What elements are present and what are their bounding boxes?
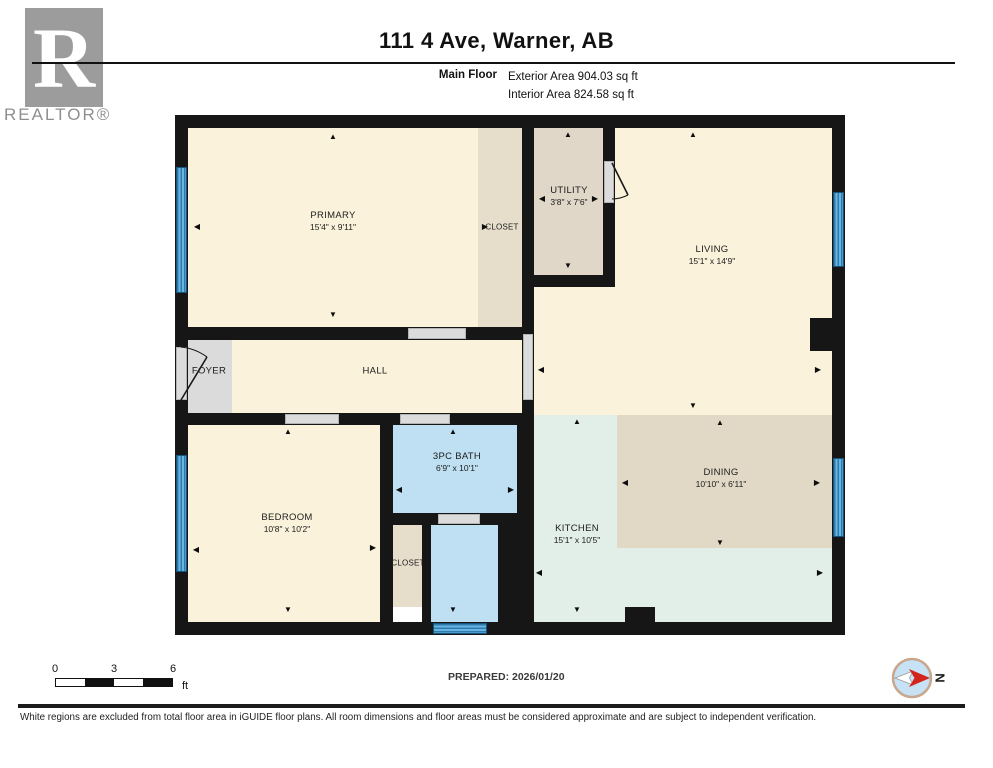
compass-icon: N bbox=[888, 655, 948, 703]
measure-arrow-up: ▲ bbox=[573, 418, 581, 426]
measure-arrow-left: ◀ bbox=[193, 546, 199, 554]
scale-unit: ft bbox=[182, 680, 188, 692]
room-label-hall: HALL bbox=[363, 366, 388, 377]
wall-chimney bbox=[810, 318, 833, 351]
measure-arrow-left: ◀ bbox=[622, 479, 628, 487]
measure-arrow-right: ▶ bbox=[814, 479, 820, 487]
measure-arrow-down: ▼ bbox=[716, 539, 724, 547]
room-label-utility: UTILITY3'8" x 7'6" bbox=[550, 185, 587, 207]
room-label-living: LIVING15'1" x 14'9" bbox=[689, 244, 736, 266]
wall-hall-bottom bbox=[175, 413, 534, 425]
room-vestibule bbox=[431, 525, 498, 622]
window-dining bbox=[833, 458, 844, 537]
measure-arrow-up: ▲ bbox=[716, 419, 724, 427]
disclaimer-text: White regions are excluded from total fl… bbox=[20, 712, 973, 723]
measure-arrow-down: ▼ bbox=[573, 606, 581, 614]
scale-labels: 0 3 6 bbox=[55, 663, 173, 675]
floorplan-page: R REALTOR® 111 4 Ave, Warner, AB Main Fl… bbox=[0, 0, 993, 768]
measure-arrow-right: ▶ bbox=[592, 195, 598, 203]
wall-outer-top bbox=[175, 115, 845, 128]
measure-arrow-right: ▶ bbox=[508, 486, 514, 494]
measure-arrow-up: ▲ bbox=[689, 131, 697, 139]
measure-arrow-down: ▼ bbox=[449, 606, 457, 614]
measure-arrow-down: ▼ bbox=[329, 311, 337, 319]
room-label-bedroom: BEDROOM10'8" x 10'2" bbox=[261, 512, 312, 534]
compass-n-label: N bbox=[933, 673, 948, 682]
door-bath bbox=[400, 414, 450, 424]
room-label-bedroom-closet: CLOSET bbox=[391, 559, 424, 568]
measure-arrow-up: ▲ bbox=[284, 428, 292, 436]
scale-bar-segments bbox=[55, 678, 173, 687]
room-label-primary: PRIMARY15'4" x 9'11" bbox=[310, 210, 356, 232]
measure-arrow-up: ▲ bbox=[329, 133, 337, 141]
wall-vestibule-left bbox=[422, 525, 431, 622]
measure-arrow-left: ◀ bbox=[539, 195, 545, 203]
floor-plan: PRIMARY15'4" x 9'11"CLOSETUTILITY3'8" x … bbox=[0, 0, 993, 768]
door-bedroom bbox=[285, 414, 339, 424]
door-hall-living bbox=[523, 334, 533, 400]
window-primary bbox=[176, 167, 187, 293]
room-label-dining: DINING10'10" x 6'11" bbox=[696, 467, 747, 489]
wall-utility-bottom bbox=[522, 275, 615, 287]
measure-arrow-left: ◀ bbox=[396, 486, 402, 494]
door-primary bbox=[408, 328, 466, 339]
wall-vestibule-right bbox=[498, 525, 534, 622]
footer-divider bbox=[18, 704, 965, 708]
measure-arrow-left: ◀ bbox=[194, 223, 200, 231]
measure-arrow-right: ▶ bbox=[815, 366, 821, 374]
scale-label-6: 6 bbox=[170, 663, 176, 675]
window-bedroom bbox=[176, 455, 187, 572]
measure-arrow-down: ▼ bbox=[564, 262, 572, 270]
utility-door-swing bbox=[611, 162, 657, 208]
room-label-foyer: FOYER bbox=[192, 366, 226, 377]
scale-label-3: 3 bbox=[111, 663, 117, 675]
measure-arrow-up: ▲ bbox=[449, 428, 457, 436]
scale-label-0: 0 bbox=[52, 663, 58, 675]
wall-outer-bottom bbox=[175, 622, 845, 635]
window-living bbox=[833, 192, 844, 267]
room-label-bath: 3PC BATH6'9" x 10'1" bbox=[433, 451, 481, 473]
measure-arrow-up: ▲ bbox=[564, 131, 572, 139]
door-bath-vestibule bbox=[438, 514, 480, 524]
prepared-date: PREPARED: 2026/01/20 bbox=[448, 671, 565, 683]
room-label-kitchen: KITCHEN15'1" x 10'5" bbox=[554, 523, 601, 545]
measure-arrow-down: ▼ bbox=[284, 606, 292, 614]
wall-kitchen-stub bbox=[625, 607, 655, 623]
wall-hall-top bbox=[175, 327, 534, 340]
measure-arrow-right: ▶ bbox=[370, 544, 376, 552]
scale-bar: 0 3 6 ft bbox=[55, 663, 173, 687]
measure-arrow-left: ◀ bbox=[538, 366, 544, 374]
window-vestibule bbox=[433, 623, 487, 634]
measure-arrow-down: ▼ bbox=[689, 402, 697, 410]
measure-arrow-right: ▶ bbox=[482, 223, 488, 231]
room-hall bbox=[232, 340, 522, 413]
wall-bath-right bbox=[517, 425, 534, 525]
room-label-primary-closet: CLOSET bbox=[485, 223, 518, 232]
measure-arrow-left: ◀ bbox=[536, 569, 542, 577]
measure-arrow-right: ▶ bbox=[817, 569, 823, 577]
